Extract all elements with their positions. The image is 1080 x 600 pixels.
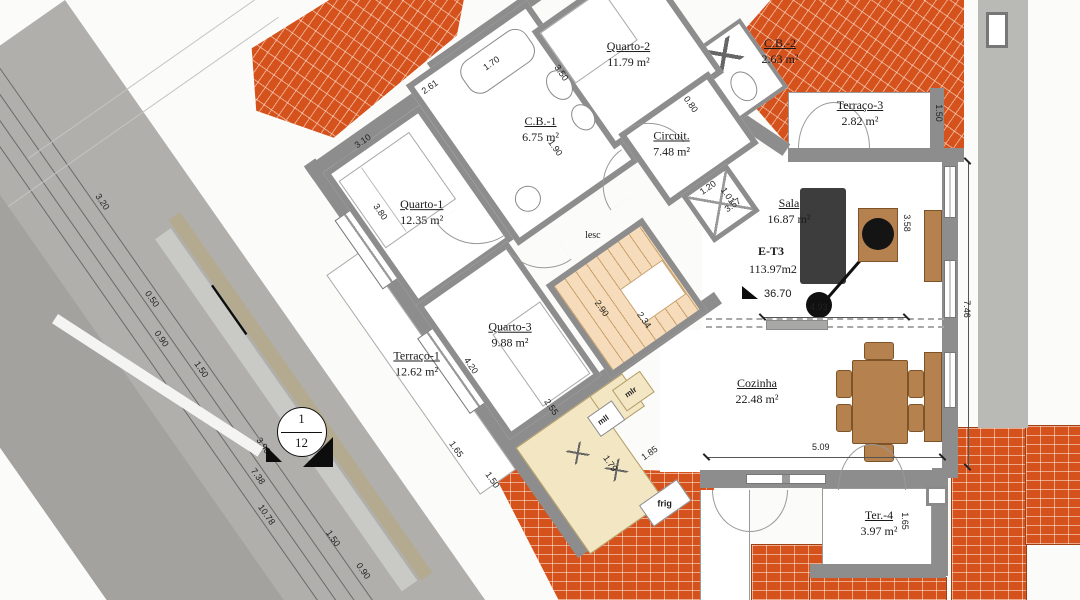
street-dim-1_50b: 1.50: [324, 528, 342, 548]
stairs-label-text: lesc: [568, 229, 618, 242]
street-dim-0_50: 0.50: [143, 289, 161, 309]
cozinha-label: Cozinha 22.48 m²: [712, 376, 802, 407]
quarto2-label: Quarto-2 11.79 m²: [583, 39, 673, 70]
cb1-name: C.B.-1: [496, 114, 586, 130]
quarto1-name: Quarto-1: [377, 197, 467, 213]
sheet-marker-divider: [281, 432, 322, 433]
quarto3-name: Quarto-3: [465, 320, 555, 336]
terraco3-label: Terraço-3 2.82 m²: [810, 98, 910, 129]
dim-7_46: 7.46: [962, 300, 972, 318]
cozinha-name: Cozinha: [712, 376, 802, 392]
dim-1_85: 1.85: [639, 444, 659, 462]
quarto2-area: 11.79 m²: [583, 55, 673, 71]
ter4-bottom-wall: [810, 564, 946, 578]
dim-4_93: 4.93: [810, 302, 828, 312]
cb1-area: 6.75 m²: [496, 130, 586, 146]
terraco3-name: Terraço-3: [810, 98, 910, 114]
cb1-label: C.B.-1 6.75 m²: [496, 114, 586, 145]
dishwasher-label: mll: [596, 413, 611, 427]
quarto1-label: Quarto-1 12.35 m²: [377, 197, 467, 228]
terraco1-area: 12.62 m²: [372, 364, 462, 380]
unit-code: E-T3: [736, 244, 806, 260]
circuit-area: 7.48 m²: [627, 144, 717, 160]
floor-plan-canvas: 3.20 0.50 0.90 1.50 3.90 7.38 10.78 1.50…: [0, 0, 1080, 600]
fridge-label: frig: [657, 498, 672, 508]
quarto3-label: Quarto-3 9.88 m²: [465, 320, 555, 351]
cb2-area: 2.63 m²: [740, 52, 820, 68]
quarto1-area: 12.35 m²: [377, 213, 467, 229]
circuit-label: Circuit. 7.48 m²: [627, 128, 717, 159]
sala-label: Sala 16.87 m²: [744, 196, 834, 227]
circuit-name: Circuit.: [627, 128, 717, 144]
ter4-wall-box: [926, 486, 948, 506]
terraco1-label: Terraço-1 12.62 m²: [372, 348, 462, 379]
ter4-right-wall: [932, 468, 948, 576]
roof-below-ter4: [810, 578, 946, 600]
dimline-5_09: [706, 457, 944, 458]
cozinha-area: 22.48 m²: [712, 392, 802, 408]
sala-name: Sala: [744, 196, 834, 212]
street-dim-1_50: 1.50: [192, 359, 210, 379]
cb2-label: C.B.-2 2.63 m²: [740, 36, 820, 67]
unit-area-label: 113.97m2: [728, 262, 818, 278]
sheet-total: 12: [278, 435, 325, 452]
sidewalk-window-box: [986, 12, 1008, 48]
sheet-marker: 1 12: [277, 407, 327, 457]
stairs-label: lesc: [568, 229, 618, 242]
roof-bottom-right-b: [1026, 426, 1080, 544]
quarto2-name: Quarto-2: [583, 39, 673, 55]
street-dim-0_90: 0.90: [153, 328, 171, 348]
street-dim-3_20: 3.20: [93, 192, 111, 212]
cb2-name: C.B.-2: [740, 36, 820, 52]
level-value: 36.70: [764, 288, 792, 300]
terraco3-area: 2.82 m²: [810, 114, 910, 130]
dimline-4_93: [762, 317, 908, 318]
roof-bottom-right-a: [952, 428, 1026, 600]
washer-label: mlr: [623, 385, 638, 400]
street-dim-10_78: 10.78: [256, 503, 277, 527]
terraco1-name: Terraço-1: [372, 348, 462, 364]
unit-code-label: E-T3: [736, 244, 806, 260]
dim-5_09: 5.09: [812, 442, 830, 452]
dim-1_65-t4: 1.65: [900, 512, 910, 530]
sheet-number: 1: [278, 411, 325, 428]
dim-1_50-t3: 1.50: [934, 104, 944, 122]
quarto3-area: 9.88 m²: [465, 335, 555, 351]
street-dim-7_38: 7.38: [249, 466, 267, 486]
dim-3_58: 3.58: [902, 214, 912, 232]
unit-area: 113.97m2: [728, 262, 818, 278]
sala-area: 16.87 m²: [744, 212, 834, 228]
